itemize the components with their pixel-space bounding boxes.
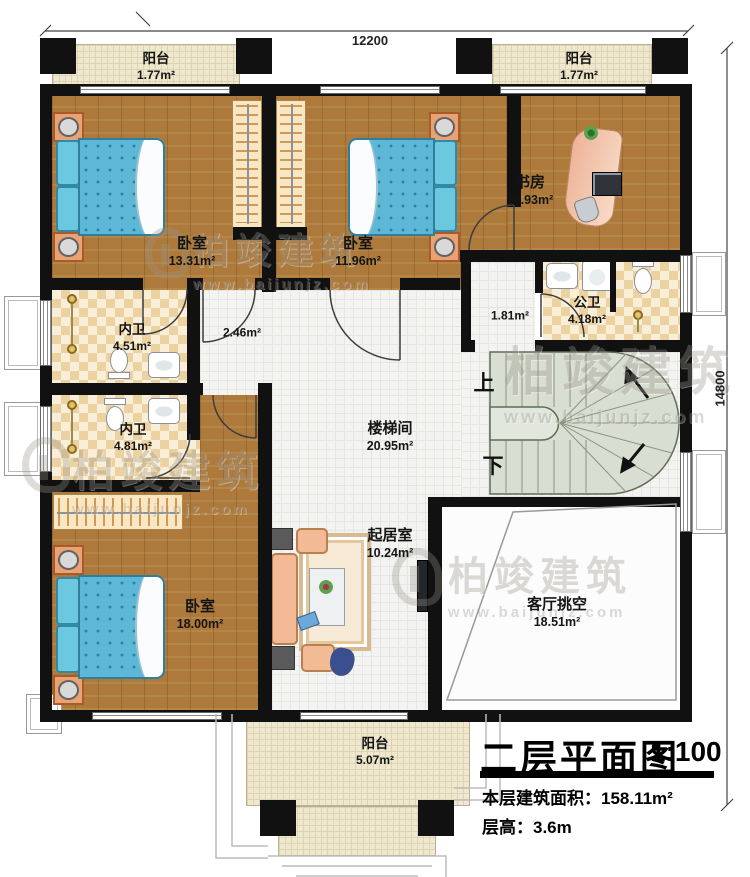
wall-closet-center — [262, 96, 276, 292]
label-ensuite-upper: 内卫4.51m² — [113, 322, 151, 354]
towel-rail — [71, 406, 73, 448]
wall-corr-top-d — [400, 278, 460, 290]
dimension-right: 14800 — [713, 361, 728, 417]
bay-window-right-lower — [692, 450, 726, 534]
rail-knob — [67, 294, 77, 304]
armchair-top — [296, 528, 328, 554]
wall-bed3-right — [258, 383, 272, 710]
bed-top-left — [53, 112, 163, 259]
nightstand — [53, 675, 84, 705]
bay-window-left-upper — [4, 296, 42, 370]
label-study: 书房10.93m² — [507, 174, 554, 208]
wall-ensuite-upper-right — [187, 290, 200, 383]
label-living-void: 客厅挑空18.51m² — [527, 596, 587, 630]
pillow — [56, 140, 80, 186]
post — [40, 38, 76, 74]
label-family-room: 起居室10.24m² — [367, 527, 414, 561]
wall-bath-bottom-stub — [461, 340, 475, 352]
pillow — [56, 186, 80, 232]
corridor-floor — [200, 290, 461, 395]
pillow — [433, 186, 457, 232]
desk-monitor — [592, 172, 622, 196]
pillow — [56, 625, 80, 673]
wall-study-bottom — [460, 250, 692, 262]
public-toilet-bowl — [634, 268, 652, 294]
floor-height-line: 层高：3.6m — [482, 813, 572, 838]
wall-corr-top-b — [187, 278, 203, 290]
window-study-balcony — [500, 86, 646, 94]
sofa-main — [271, 553, 298, 645]
ensuite-upper-sink — [148, 352, 180, 378]
wall-corr-top-a — [40, 278, 143, 290]
wall-tv — [428, 507, 442, 710]
wall-right — [680, 84, 692, 722]
ensuite-upper-toilet-tank — [108, 372, 130, 379]
wall-closet-stub — [233, 227, 307, 240]
wardrobe-right — [276, 100, 306, 228]
balcony-bottom-step — [278, 806, 436, 856]
rail-knob — [67, 344, 77, 354]
mattress — [78, 138, 165, 236]
post — [236, 38, 272, 74]
rail-knob — [67, 400, 77, 410]
wall-bath-partition — [610, 262, 616, 312]
label-balcony-bottom: 阳台5.07m² — [356, 736, 394, 768]
side-table-top — [271, 528, 293, 550]
drain-stem — [637, 318, 639, 332]
label-stair-hall: 楼梯间20.95m² — [367, 420, 414, 454]
bedroom-large-vestibule-floor — [200, 395, 258, 480]
wall-corr-bottom — [40, 383, 203, 395]
window-right-lower — [680, 452, 692, 532]
nightstand — [53, 545, 84, 575]
label-bedroom-top-mid: 卧室11.96m² — [335, 235, 381, 269]
towel-rail — [71, 300, 73, 348]
wardrobe-large-bedroom — [53, 494, 183, 530]
wall-bath-left-a — [535, 262, 543, 293]
label-corridor: 2.46m² — [223, 326, 261, 341]
window-bed3 — [92, 712, 222, 720]
wall-ensuite-lower-right — [187, 395, 200, 440]
table-flowers — [319, 580, 333, 594]
window-bed1-balcony — [80, 86, 230, 94]
wall-left — [40, 84, 52, 722]
title-underline — [480, 771, 714, 778]
label-hall-small: 1.81m² — [491, 309, 529, 324]
post — [418, 800, 454, 836]
nightstand — [429, 232, 460, 262]
wall-corr-top-c — [255, 278, 330, 290]
door-balcony-slider — [300, 712, 408, 720]
wall-void-top — [428, 497, 680, 507]
washing-machine — [582, 261, 612, 291]
label-public-bath: 公卫4.18m² — [568, 295, 606, 327]
wardrobe-left — [232, 100, 262, 228]
label-balcony-top-left: 阳台1.77m² — [137, 51, 175, 83]
rail-knob — [67, 444, 77, 454]
pillow — [56, 577, 80, 625]
hall-small-floor — [461, 262, 535, 352]
floor-plan: 柏竣建筑www.baijunjz.com 柏竣建筑www.baijunjz.co… — [0, 0, 750, 877]
nightstand — [53, 232, 84, 262]
stair-down-label: 下 — [483, 450, 504, 480]
wall-bath-bottom — [535, 340, 692, 352]
ensuite-lower-sink — [148, 398, 180, 424]
watermark-logo — [22, 437, 70, 493]
post — [456, 38, 492, 74]
window-bed2 — [320, 86, 440, 94]
post — [260, 800, 296, 836]
side-table-bottom — [271, 646, 295, 670]
bed-large — [53, 545, 163, 703]
stair-up-label: 上 — [474, 367, 495, 397]
desk-plant — [584, 126, 598, 140]
drawing-scale: 1:100 — [650, 736, 722, 768]
mattress — [78, 575, 165, 679]
label-bedroom-large: 卧室18.00m² — [177, 598, 224, 632]
post — [652, 38, 688, 74]
bay-window-right-upper — [692, 252, 726, 316]
window-left-upper — [40, 300, 52, 366]
label-balcony-top-right: 阳台1.77m² — [560, 51, 598, 83]
dimension-top: 12200 — [338, 33, 402, 48]
pillow — [433, 140, 457, 186]
label-bedroom-top-left: 卧室13.31m² — [169, 235, 216, 269]
mattress — [348, 138, 435, 236]
public-bath-sink — [546, 263, 578, 289]
window-right-upper — [680, 255, 692, 313]
ensuite-lower-toilet-tank — [104, 398, 126, 405]
floor-area-line: 本层建筑面积：158.11m² — [482, 784, 673, 809]
label-ensuite-lower: 内卫4.81m² — [114, 422, 152, 454]
wall-hall-left — [461, 262, 471, 340]
